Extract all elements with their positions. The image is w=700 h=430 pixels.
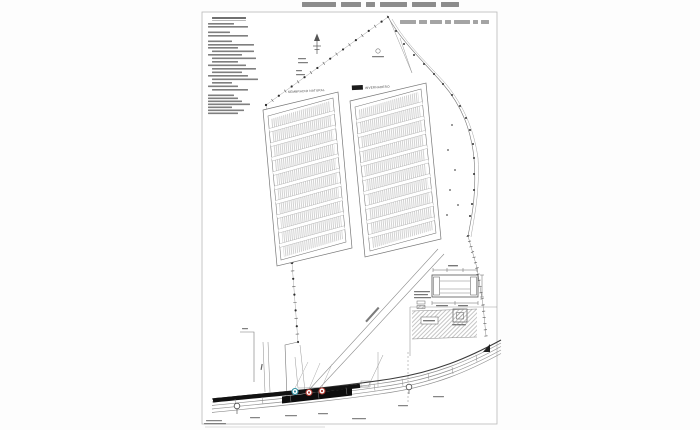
scanned-plan-page: SEMBRADIO NATURAL INVERNADERO (0, 0, 700, 430)
service-marker-red-2 (319, 388, 325, 394)
service-marker-red-1 (306, 390, 312, 396)
site-plan-drawing: SEMBRADIO NATURAL INVERNADERO (0, 0, 700, 430)
page-title (302, 2, 459, 7)
field-left (263, 92, 352, 266)
field-right (350, 83, 441, 257)
service-marker-blue (292, 389, 298, 395)
